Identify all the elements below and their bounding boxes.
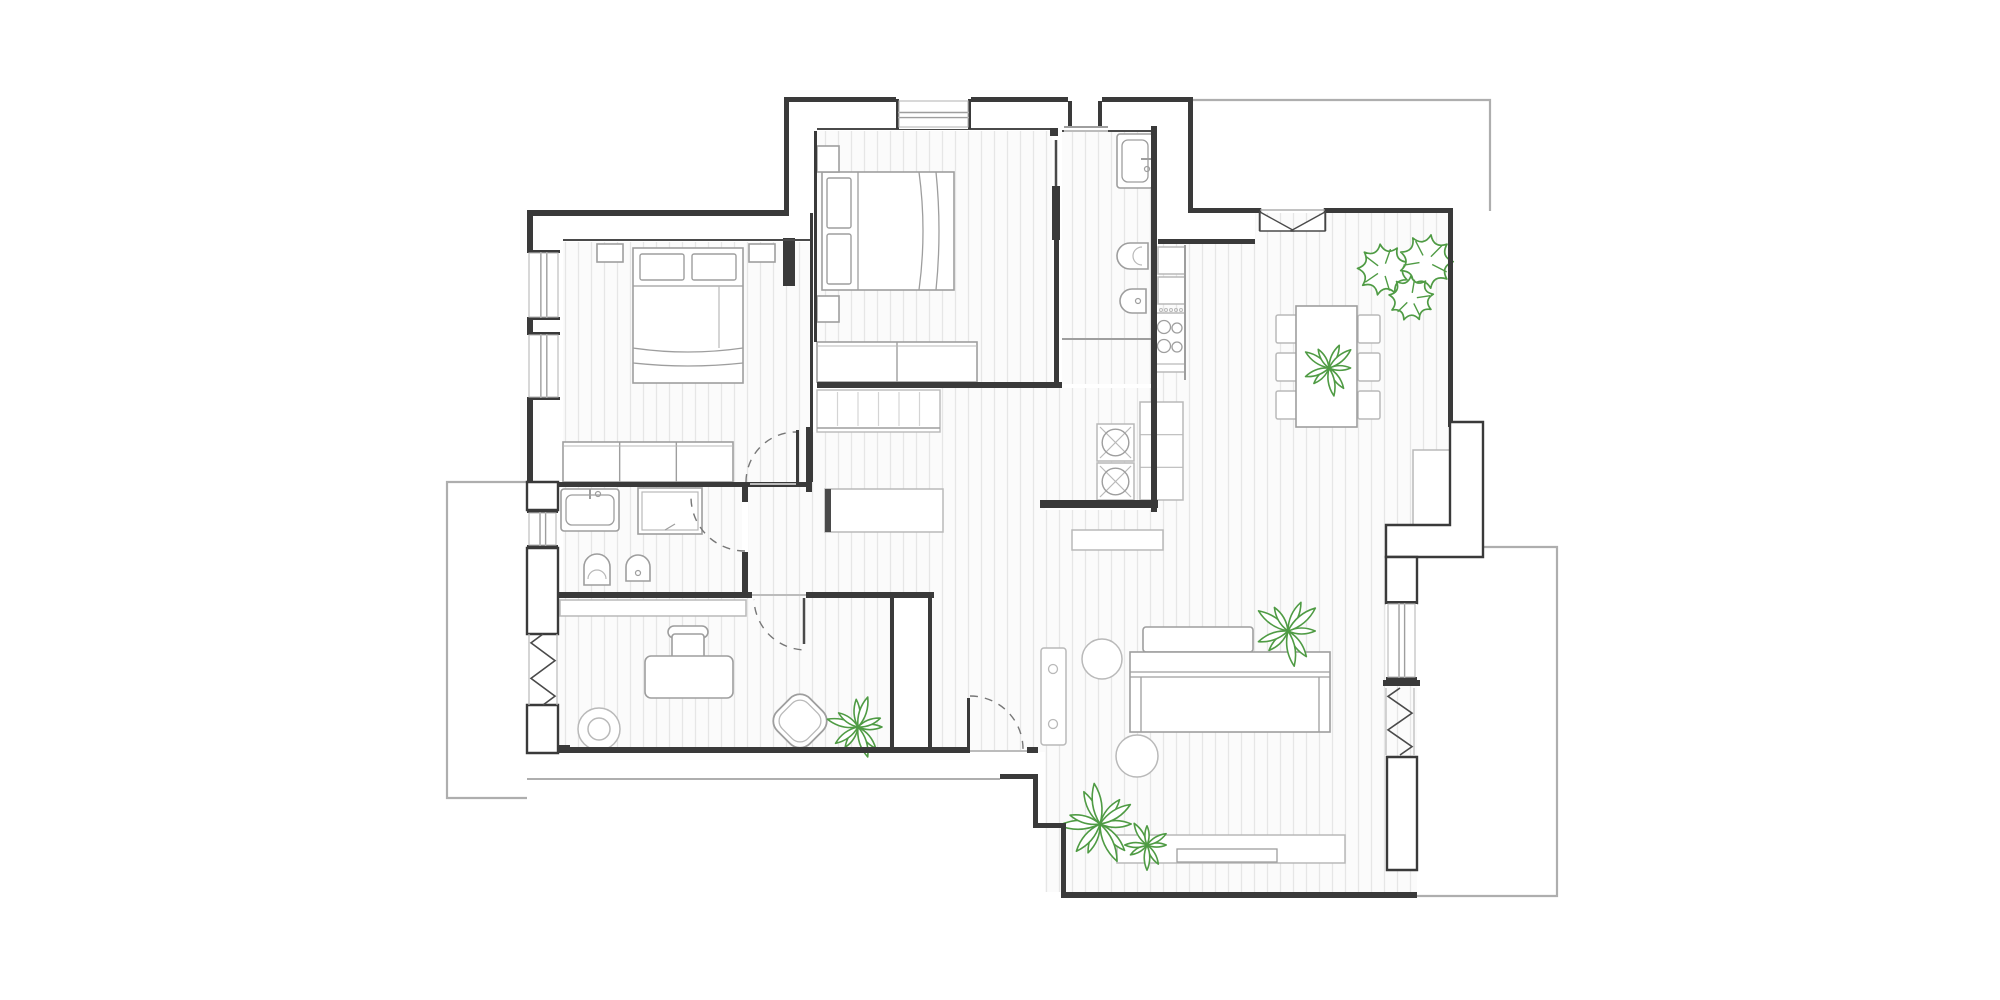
balcony-left: [447, 482, 527, 798]
shower-bathroom-2: [638, 488, 702, 534]
dining-chair-6: [1358, 391, 1380, 419]
wall-top-1: [787, 97, 896, 102]
wall-master-right-2: [1054, 240, 1059, 382]
pier-east-bottom: [1387, 757, 1417, 870]
wall-bath2-right-1: [742, 487, 748, 502]
dresser-master: [817, 342, 977, 382]
wall-closet-left: [890, 598, 894, 748]
entry-corridor-floor: [933, 592, 1045, 752]
pillow: [692, 254, 736, 280]
vestibule-floor: [748, 432, 812, 598]
kitchen-tall-cabinet: [1413, 450, 1450, 527]
bench-living: [1072, 530, 1163, 550]
wall-kitchen-nook: [1158, 239, 1255, 244]
bidet-icon: [1120, 289, 1146, 313]
wall-kitchen-top-1: [1188, 208, 1260, 213]
wall-step-office-sw: [558, 745, 570, 753]
wall-ne-step: [1188, 97, 1193, 213]
wall-entry-stub-right: [1098, 101, 1102, 128]
balcony-top-right: [1193, 100, 1490, 211]
nightstand-master-2: [817, 296, 839, 322]
wardrobe-bedroom-left: [563, 442, 733, 482]
kitchen-cabinet-1: [1158, 247, 1185, 274]
terrace-right: [1417, 547, 1557, 896]
entry-console: [1041, 648, 1066, 745]
sink-bathroom-2: [561, 489, 619, 531]
washing-machine: [1097, 424, 1134, 461]
wall-sw-step-4: [1061, 823, 1066, 898]
tv-icon: [1177, 849, 1277, 862]
round-rug: [578, 708, 620, 750]
pillow: [640, 254, 684, 280]
nightstand-left-2: [749, 244, 775, 262]
dining-chair-1: [1276, 315, 1298, 343]
wall-sw-step-1: [1000, 774, 1038, 779]
wall-inner-master-left: [814, 131, 817, 342]
wall-top-2: [971, 97, 1068, 102]
wall-living-bottom: [1061, 892, 1417, 898]
bed-bedroom-left: [633, 248, 743, 383]
dining-chair-3: [1276, 391, 1298, 419]
pier-west-office: [527, 705, 558, 753]
wall-nw-vertical: [784, 97, 789, 213]
toilet-bathroom-master: [1117, 243, 1148, 269]
window-living-east: [1386, 601, 1417, 680]
basin: [1122, 140, 1148, 182]
sink-bathroom-master: [1117, 134, 1153, 188]
sofa-back-cushion: [1143, 627, 1253, 652]
wall-office-top-1: [558, 592, 752, 598]
dining-chair-5: [1358, 353, 1380, 381]
office-desk: [645, 656, 733, 698]
window-master-top: [896, 99, 971, 129]
wall-west-above-window1: [527, 210, 533, 250]
wall-shaft: [783, 238, 795, 286]
basin: [566, 495, 614, 525]
leaf-icon: [1144, 845, 1150, 870]
kitchen-nook: [1158, 213, 1255, 239]
wall-bathroom-master-right: [1151, 126, 1157, 512]
floor-plan-canvas: [0, 0, 2000, 1000]
window-bedroom-left-1: [527, 250, 560, 320]
bidet-bathroom-master: [1120, 289, 1146, 313]
wall-kitchen-right: [1448, 208, 1453, 427]
wall-bedroom-left-top: [527, 210, 789, 216]
folding-door-office-balcony: [529, 634, 557, 705]
wall-inner-bedrooms-divider: [810, 213, 813, 482]
bidet-icon: [626, 555, 650, 581]
wall-master-right-1: [1052, 186, 1060, 240]
wall-entry-stub-left: [1068, 101, 1072, 128]
laundry-shelves: [1140, 402, 1183, 500]
dining-chair-4: [1358, 315, 1380, 343]
office-shelf: [560, 600, 746, 616]
wall-west-between-windows: [527, 320, 533, 332]
closet-interior: [894, 598, 928, 748]
bidet-bathroom-2: [626, 555, 650, 581]
kitchen-cabinet-2: [1158, 277, 1185, 304]
wall-west-below-window2: [527, 400, 533, 484]
pillow: [827, 178, 851, 228]
window-bedroom-left-2: [527, 332, 560, 400]
door-leaf-entry: [967, 698, 970, 749]
window-bathroom-2: [527, 510, 558, 548]
pier-west-bath2-bottom: [527, 548, 558, 634]
wall-sw-step-2: [1033, 774, 1038, 828]
wall-master-door-stub: [1050, 128, 1058, 136]
door-leaf-bedroom-left: [796, 430, 799, 482]
pier-west-bath2-top: [527, 482, 558, 510]
wall-office-bottom: [558, 747, 970, 753]
stove-cooktop: [1156, 309, 1185, 373]
wall-office-top-2: [806, 592, 934, 598]
wall-kitchen-top-2: [1325, 208, 1453, 213]
wall-window-sill-east: [1383, 680, 1420, 686]
pier-east-mid: [1386, 557, 1417, 603]
side-table-2: [1116, 735, 1158, 777]
wall-closet-right: [928, 598, 932, 748]
dryer-machine: [1097, 463, 1134, 500]
sideboard-living-arm: [825, 489, 943, 532]
wall-bath2-right-2: [742, 552, 748, 592]
nightstand-master-1: [817, 146, 839, 172]
wall-master-bottom: [817, 382, 1062, 388]
closet-hallway: [817, 390, 940, 432]
accordion-door-icon: [531, 634, 555, 705]
pillow: [827, 234, 851, 284]
wall-top-3: [1102, 97, 1193, 102]
wall-laundry-bottom: [1040, 500, 1158, 508]
dining-chair-2: [1276, 353, 1298, 381]
bed-master: [822, 172, 954, 290]
nightstand-left-1: [597, 244, 623, 262]
wall-entry-right-stub: [1027, 747, 1038, 753]
toilet-bathroom-2: [584, 554, 610, 585]
side-table-1: [1082, 639, 1122, 679]
floor-plan-page: [0, 0, 2000, 1000]
